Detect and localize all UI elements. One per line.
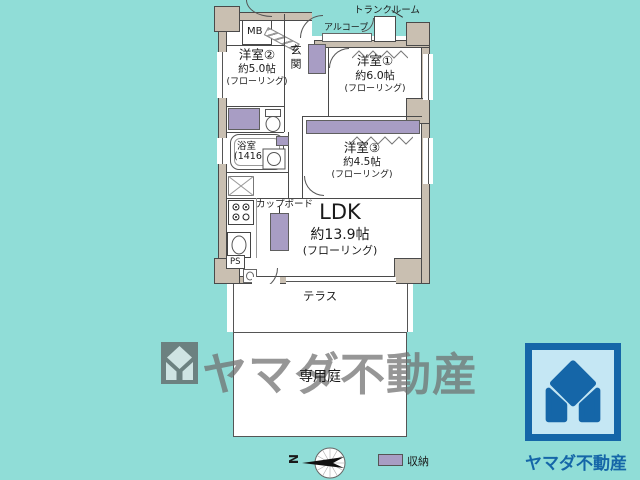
brand-logo-icon bbox=[537, 354, 609, 430]
hanger-pipe-zigzag bbox=[352, 50, 408, 59]
legend-storage-label: 収納 bbox=[407, 453, 429, 469]
bath-size: (1416) bbox=[234, 151, 266, 162]
ldk-floor: (フローリング) bbox=[298, 244, 382, 258]
washstand-cabinet bbox=[276, 136, 289, 146]
brand-logo bbox=[525, 343, 621, 441]
wall-line bbox=[226, 172, 288, 173]
room2-floor: (フローリング) bbox=[226, 77, 288, 89]
trunk-room-box bbox=[374, 16, 396, 42]
entrance-label: 玄関 bbox=[287, 44, 303, 72]
terrace-label: テラス bbox=[227, 288, 413, 304]
trunk-room-label: トランクルーム bbox=[354, 2, 420, 16]
pillar bbox=[214, 6, 240, 32]
ps-label: PS bbox=[230, 257, 241, 267]
legend-storage-swatch bbox=[378, 454, 403, 466]
wall-line bbox=[302, 116, 422, 117]
garden-label: 専用庭 bbox=[233, 366, 407, 386]
pillar bbox=[394, 258, 422, 284]
wall-line bbox=[302, 116, 303, 198]
room3-size: 約4.5帖 bbox=[306, 156, 418, 170]
room2-name: 洋室② bbox=[226, 47, 288, 63]
washer-space-icon bbox=[228, 176, 254, 196]
window bbox=[217, 138, 227, 164]
room3-name: 洋室③ bbox=[306, 140, 418, 156]
toilet-icon bbox=[262, 108, 284, 133]
room3-closet bbox=[306, 120, 420, 134]
room2-size: 約5.0帖 bbox=[226, 63, 288, 77]
pillar bbox=[406, 22, 430, 46]
wall-line bbox=[226, 106, 284, 107]
room1-size: 約6.0帖 bbox=[328, 69, 422, 83]
compass-north-letter: N bbox=[286, 454, 300, 464]
window bbox=[217, 52, 227, 98]
bath-name: 浴室 bbox=[237, 138, 256, 152]
wall-line bbox=[226, 45, 284, 46]
room2-label: 洋室② 約5.0帖 (フローリング) bbox=[226, 47, 288, 89]
floor-plan-page: アルコープ トランクルーム MB 玄関 洋室② 約5.0帖 (フローリング) 洋… bbox=[0, 0, 640, 480]
stove-icon bbox=[228, 200, 254, 225]
watermark-logo-icon bbox=[161, 342, 198, 384]
ldk-label: LDK 約13.9帖 (フローリング) bbox=[298, 199, 382, 259]
shoe-cabinet bbox=[308, 44, 326, 74]
washbasin-icon bbox=[262, 148, 286, 170]
window bbox=[423, 138, 433, 184]
compass-icon bbox=[300, 444, 350, 480]
meter-box-label: MB bbox=[247, 26, 263, 37]
alcove-floor bbox=[322, 33, 372, 42]
brand-logo-text: ヤマダ不動産 bbox=[519, 449, 633, 474]
cupboard bbox=[270, 213, 289, 251]
ldk-size: 約13.9帖 bbox=[298, 226, 382, 244]
ldk-name: LDK bbox=[298, 199, 382, 226]
room1-floor: (フローリング) bbox=[328, 84, 422, 96]
room2-closet bbox=[228, 108, 260, 130]
window bbox=[423, 54, 433, 100]
